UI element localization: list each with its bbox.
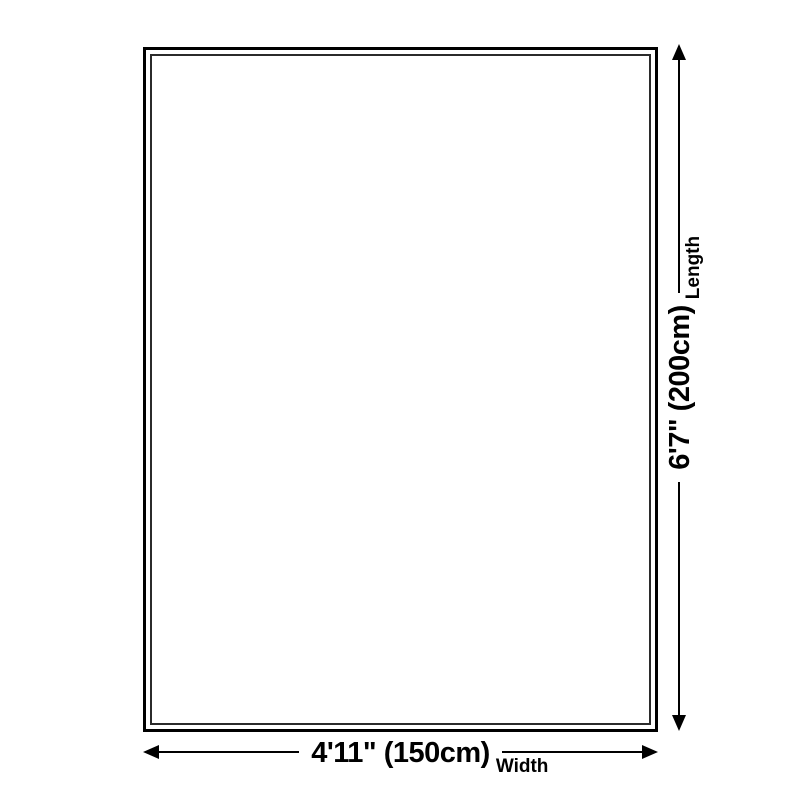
dimension-line: [678, 482, 680, 718]
width-arrow-left-segment: [143, 729, 299, 777]
dimension-line: [502, 751, 645, 753]
product-outline-inner-border: [150, 54, 651, 725]
product-outline: [143, 47, 658, 732]
dimension-line: [678, 57, 680, 293]
width-dimension-arrow: 4'11" (150cm) Width: [143, 729, 658, 777]
length-dimension-arrow: 6'7" (200cm) Length: [656, 44, 704, 731]
arrow-up-icon: [672, 44, 686, 60]
size-diagram: 4'11" (150cm) Width 6'7" (200cm) Length: [0, 0, 800, 800]
width-arrow-right-segment: Width: [502, 729, 658, 777]
dimension-line: [156, 751, 299, 753]
length-axis-label: Length: [683, 236, 705, 299]
arrow-right-icon: [642, 745, 658, 759]
length-value: 6'7" (200cm): [656, 305, 706, 470]
width-value: 4'11" (150cm): [311, 729, 490, 779]
length-arrow-top-segment: Length: [656, 44, 704, 293]
width-axis-label: Width: [496, 756, 549, 778]
length-arrow-bottom-segment: [656, 482, 704, 731]
